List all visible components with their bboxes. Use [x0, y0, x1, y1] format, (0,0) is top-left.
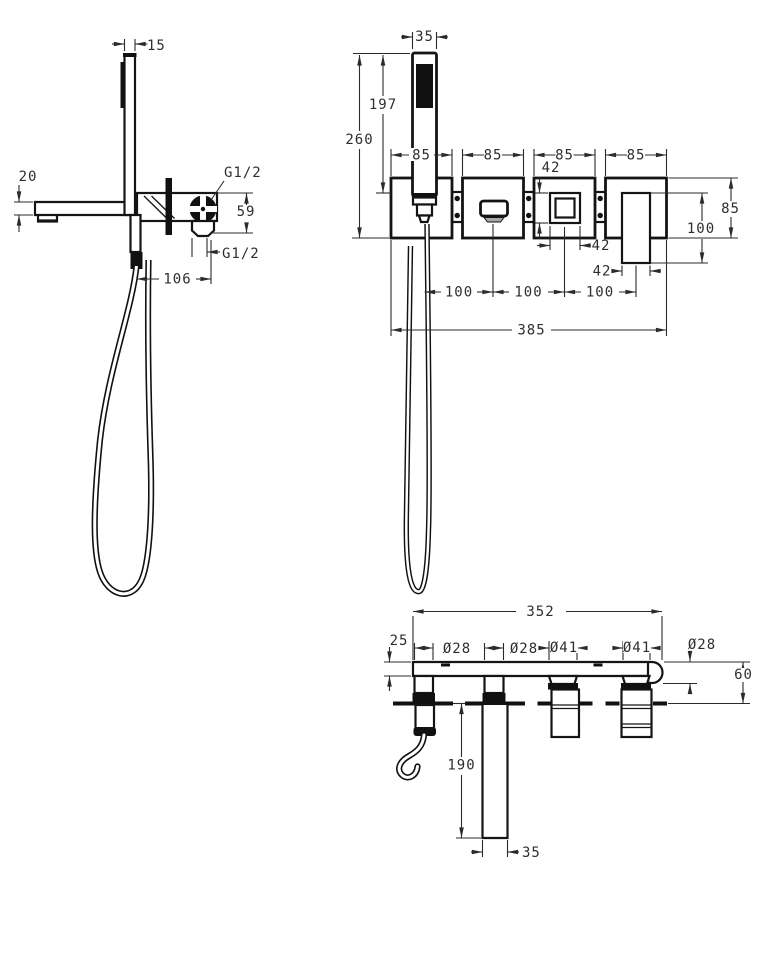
hose-outlet-side	[131, 215, 143, 269]
callout-thread-bottom: G1/2	[192, 238, 260, 262]
dim-label-plate2: 85	[484, 148, 503, 164]
bottom-view: 352 25 Ø28 Ø28	[384, 604, 755, 861]
dim-label-overall-width-front: 385	[517, 323, 545, 339]
spout-pipe-top	[483, 705, 508, 838]
dim-label-overall-height: 260	[345, 132, 373, 148]
dim-label-handle-width: 42	[593, 264, 612, 280]
inlet-block-side	[192, 221, 214, 236]
dim-label-dia-end: Ø28	[688, 637, 716, 653]
dim-label-button-width: 42	[592, 238, 611, 254]
dim-label-offset: 106	[163, 272, 191, 288]
dim-label-plate-thickness: 25	[390, 633, 409, 649]
dim-spout-thickness: 20	[14, 169, 37, 232]
dim-label-overall-width-bottom: 352	[526, 604, 554, 620]
dim-label-dia-diverter: Ø41	[550, 640, 578, 656]
spout-outlet-front	[481, 201, 508, 222]
callout-thread-top: G1/2	[211, 165, 262, 200]
diverter-button-front	[550, 193, 580, 223]
hand-shower-front	[413, 53, 437, 196]
diverter-valve-top	[538, 676, 593, 737]
dim-label-pitch2: 100	[514, 285, 542, 301]
escutcheon-2	[465, 702, 525, 706]
dim-label-handshower-length: 197	[369, 97, 397, 113]
mixer-handle-front	[622, 193, 650, 263]
dim-plate-thickness: 25	[384, 633, 411, 691]
thread-label-top: G1/2	[224, 165, 262, 181]
thread-label-bottom: G1/2	[222, 246, 260, 262]
dim-handshower-width: 35	[401, 29, 448, 49]
handle-side	[166, 178, 173, 235]
dim-dia-spout: Ø28	[485, 641, 539, 660]
dim-spout-width: 35	[471, 840, 541, 861]
shower-hose-side	[95, 260, 151, 594]
dim-label-depth: 60	[734, 667, 753, 683]
dim-label-plate4: 85	[627, 148, 646, 164]
dim-label-dia-spout: Ø28	[510, 641, 538, 657]
drawing-page: 15 20 G1/2 59 G1/2	[0, 0, 768, 970]
dim-dia-holder: Ø28	[415, 641, 472, 660]
shower-holder-top	[393, 676, 453, 777]
front-view: 35 197 260 85	[342, 29, 744, 592]
side-view: 15 20 G1/2 59 G1/2	[14, 38, 262, 594]
hand-shower-side	[121, 53, 137, 215]
dim-label-button-height: 42	[542, 160, 561, 176]
dim-label-plate1: 85	[412, 148, 431, 164]
spray-head-front	[416, 64, 433, 108]
dim-wand-width: 15	[112, 38, 166, 54]
dim-spout-length: 190	[445, 704, 481, 839]
dim-label-spout-thickness: 20	[19, 169, 38, 185]
dim-label-dia-holder: Ø28	[443, 641, 471, 657]
dim-handshower-length: 197	[353, 54, 410, 194]
dim-dia-end: Ø28	[663, 637, 716, 694]
dim-depth: 60	[664, 662, 755, 704]
technical-drawing-canvas: 15 20 G1/2 59 G1/2	[0, 0, 768, 970]
dim-label-handle-length: 100	[687, 221, 715, 237]
dim-label-spout-length: 190	[447, 758, 475, 774]
dim-body-height: 59	[211, 193, 259, 233]
dim-overall-height: 260	[342, 55, 389, 238]
dim-label-pitch3: 100	[586, 285, 614, 301]
dim-label-spout-width: 35	[522, 845, 541, 861]
dim-dia-diverter: Ø41	[539, 640, 588, 660]
dim-label-pitch1: 100	[445, 285, 473, 301]
mixer-valve-top	[606, 676, 668, 737]
dim-label-plate-height: 85	[721, 201, 740, 217]
dim-label-body-height: 59	[237, 204, 256, 220]
dim-dia-mixer: Ø41	[613, 640, 661, 660]
shower-hose-front	[406, 224, 429, 592]
spray-face-ribs	[121, 62, 126, 108]
dim-label-dia-mixer: Ø41	[623, 640, 651, 656]
dim-label-handshower-width: 35	[415, 29, 434, 45]
dim-label-wand-width: 15	[147, 38, 166, 54]
dim-handle-width: 42	[593, 264, 661, 280]
